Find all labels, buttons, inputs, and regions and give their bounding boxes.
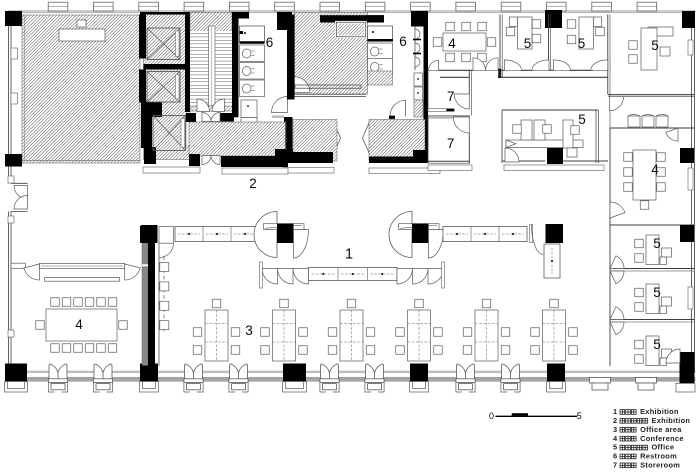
svg-text:2: 2	[613, 416, 617, 425]
svg-text:Conference: Conference	[640, 434, 684, 443]
svg-text:6: 6	[613, 452, 617, 461]
svg-text:5: 5	[653, 337, 661, 352]
svg-text:4: 4	[75, 317, 83, 332]
svg-text:7: 7	[613, 461, 617, 470]
svg-text:1: 1	[613, 407, 617, 416]
svg-text:5: 5	[653, 236, 661, 251]
svg-text:Exhibition: Exhibition	[652, 416, 691, 425]
svg-text:5: 5	[524, 36, 532, 51]
svg-text:3: 3	[245, 323, 253, 338]
svg-text:Restroom: Restroom	[640, 452, 677, 461]
svg-text:6: 6	[399, 34, 407, 49]
svg-text:5: 5	[577, 411, 582, 421]
svg-text:Exhibition: Exhibition	[640, 407, 679, 416]
svg-text:0: 0	[489, 411, 494, 421]
svg-text:2: 2	[249, 176, 257, 191]
svg-text:5: 5	[613, 443, 617, 452]
svg-text:Office: Office	[652, 443, 675, 452]
svg-text:3: 3	[613, 425, 617, 434]
svg-text:5: 5	[651, 38, 659, 53]
svg-text:5: 5	[653, 285, 661, 300]
svg-text:Storeroom: Storeroom	[640, 461, 680, 470]
svg-text:1: 1	[345, 247, 353, 263]
svg-text:7: 7	[447, 136, 455, 151]
svg-text:Office area: Office area	[640, 425, 682, 434]
svg-text:7: 7	[447, 89, 455, 104]
svg-text:5: 5	[578, 112, 586, 127]
svg-text:4: 4	[448, 36, 456, 51]
svg-text:5: 5	[578, 36, 586, 51]
svg-text:4: 4	[651, 162, 659, 177]
svg-text:6: 6	[266, 35, 274, 50]
